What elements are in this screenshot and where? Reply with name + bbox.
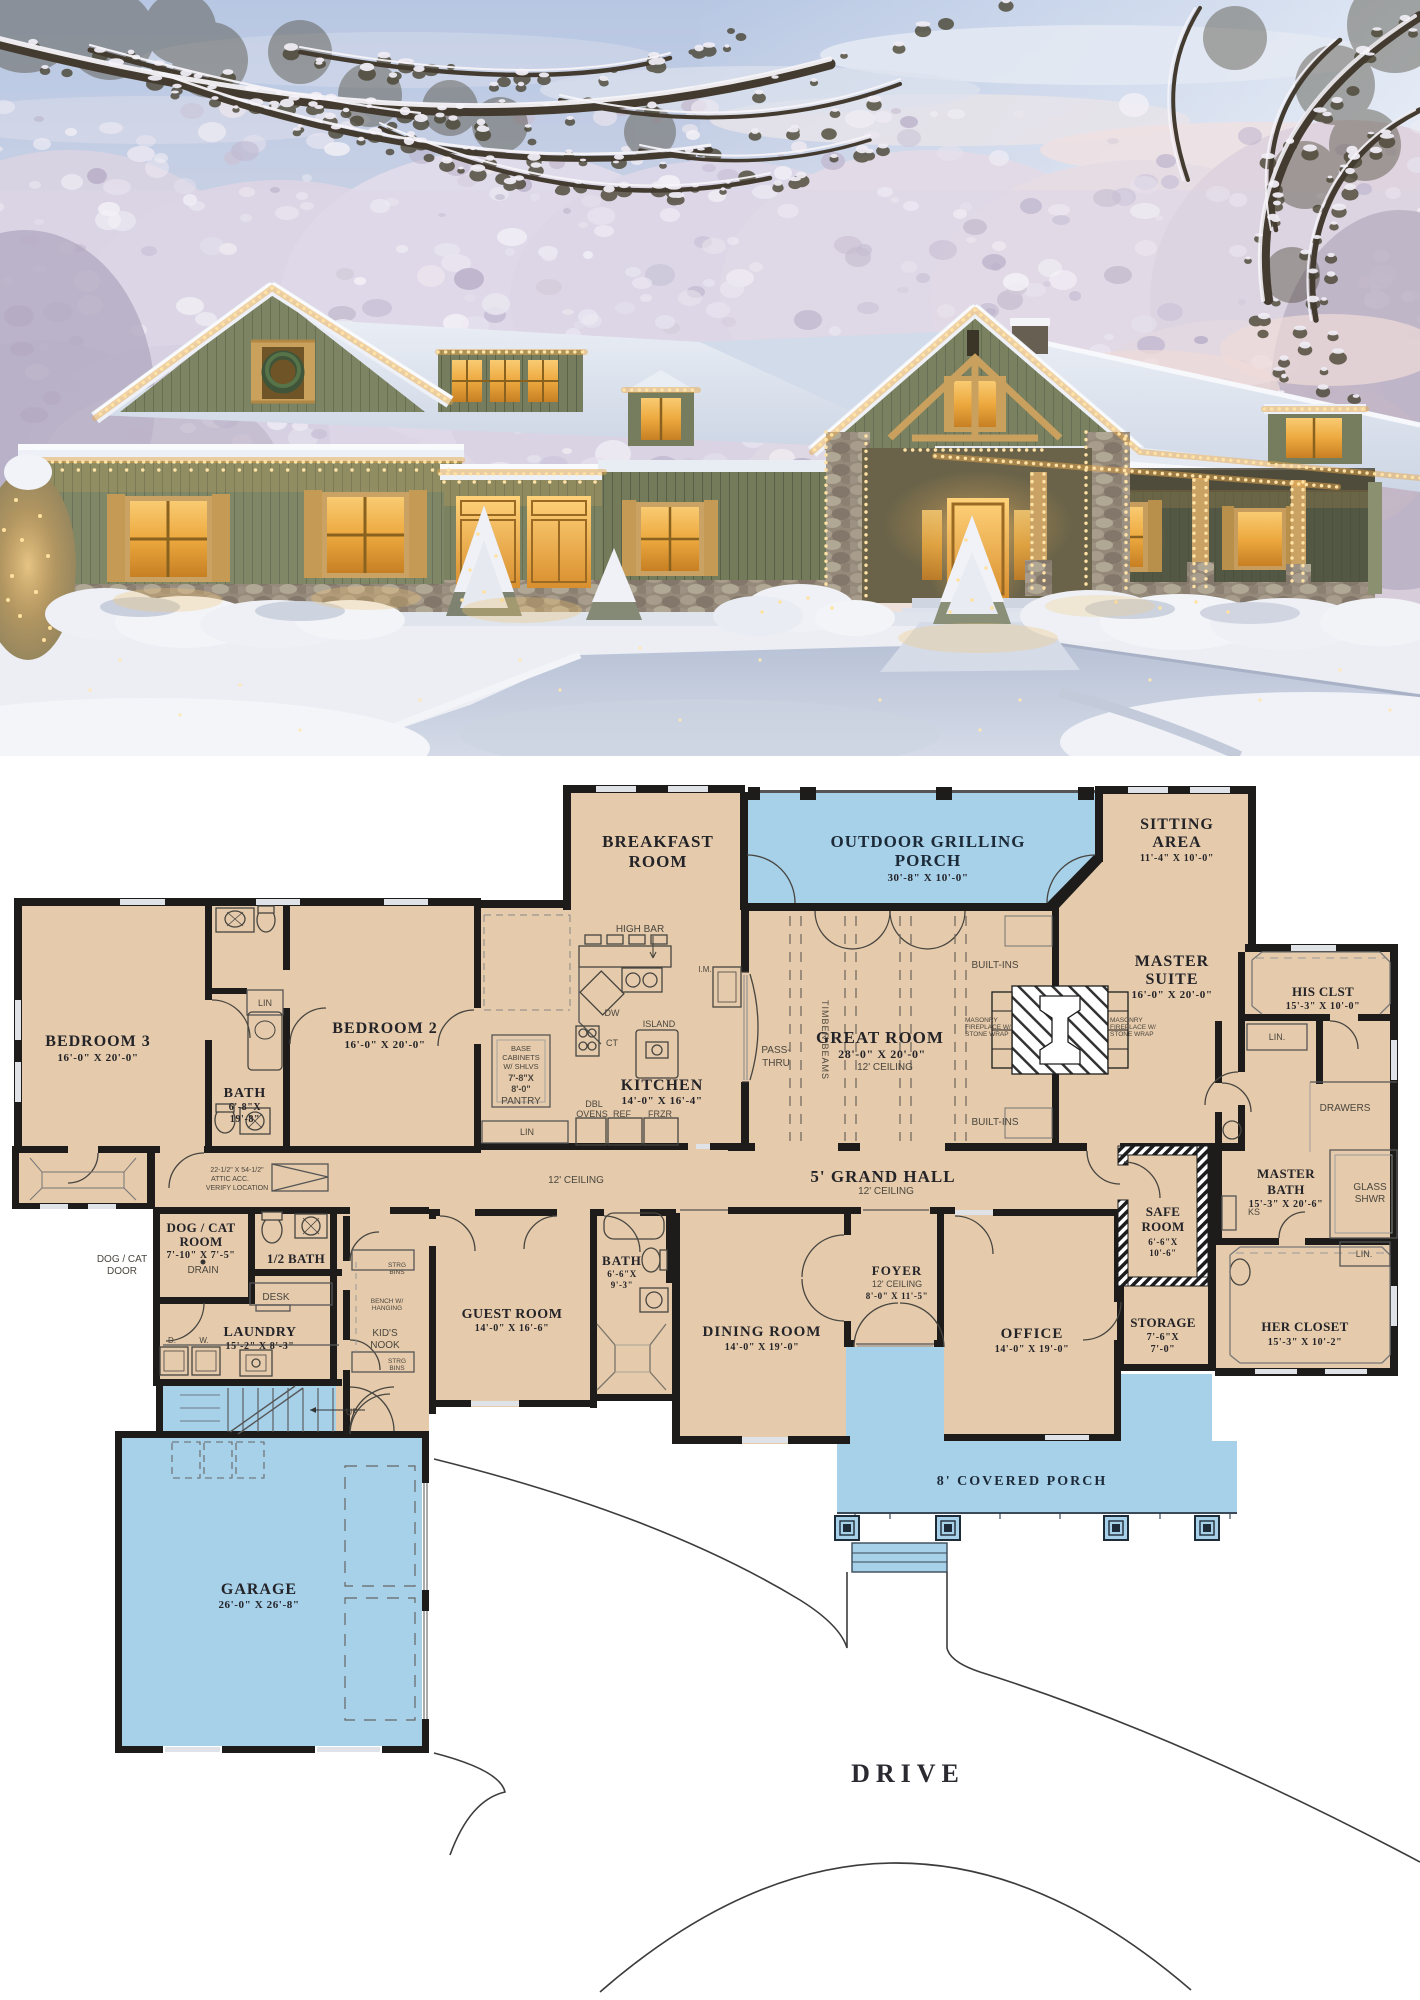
svg-text:15'-3" X 10'-2": 15'-3" X 10'-2" bbox=[1268, 1337, 1343, 1348]
svg-text:BATH: BATH bbox=[224, 1086, 267, 1101]
svg-text:STORAGE: STORAGE bbox=[1130, 1315, 1195, 1330]
svg-text:KID'S: KID'S bbox=[372, 1328, 398, 1339]
svg-text:D.: D. bbox=[168, 1336, 176, 1345]
svg-text:ATTIC ACC.: ATTIC ACC. bbox=[211, 1176, 249, 1183]
svg-text:BEDROOM 3: BEDROOM 3 bbox=[45, 1033, 150, 1050]
svg-text:BUILT-INS: BUILT-INS bbox=[971, 1117, 1018, 1128]
svg-text:12' CEILING: 12' CEILING bbox=[858, 1186, 914, 1197]
svg-text:ISLAND: ISLAND bbox=[643, 1019, 676, 1029]
svg-text:MASONRY: MASONRY bbox=[1110, 1017, 1143, 1024]
svg-text:7'-8"X: 7'-8"X bbox=[508, 1073, 533, 1083]
svg-text:LIN: LIN bbox=[258, 998, 272, 1008]
svg-text:8' COVERED PORCH: 8' COVERED PORCH bbox=[937, 1474, 1107, 1489]
svg-text:LIN.: LIN. bbox=[1269, 1032, 1286, 1042]
svg-text:ROOM: ROOM bbox=[1141, 1219, 1184, 1234]
svg-text:ROOM: ROOM bbox=[629, 852, 688, 871]
svg-text:7'-6"X: 7'-6"X bbox=[1147, 1332, 1180, 1343]
svg-text:REF: REF bbox=[613, 1109, 632, 1119]
svg-text:LIN.: LIN. bbox=[1356, 1249, 1373, 1259]
svg-text:11'-4" X 10'-0": 11'-4" X 10'-0" bbox=[1140, 853, 1214, 864]
svg-text:SHWR: SHWR bbox=[1355, 1194, 1386, 1205]
svg-text:BATH: BATH bbox=[1267, 1182, 1304, 1197]
svg-text:ROOM: ROOM bbox=[179, 1234, 222, 1249]
svg-text:HIS CLST: HIS CLST bbox=[1292, 984, 1354, 999]
svg-text:19'-8": 19'-8" bbox=[230, 1114, 260, 1125]
svg-text:PORCH: PORCH bbox=[895, 851, 961, 870]
svg-text:W.: W. bbox=[199, 1336, 208, 1345]
svg-text:GARAGE: GARAGE bbox=[221, 1581, 297, 1598]
svg-text:MASONRY: MASONRY bbox=[965, 1017, 998, 1024]
svg-text:8'-0": 8'-0" bbox=[511, 1084, 530, 1094]
svg-text:DOG / CAT: DOG / CAT bbox=[97, 1254, 147, 1265]
svg-text:DOOR: DOOR bbox=[107, 1266, 137, 1277]
svg-text:DINING ROOM: DINING ROOM bbox=[703, 1324, 822, 1340]
svg-text:12' CEILING: 12' CEILING bbox=[872, 1279, 922, 1289]
svg-text:12' CEILING: 12' CEILING bbox=[857, 1062, 913, 1073]
svg-text:GLASS: GLASS bbox=[1353, 1182, 1387, 1193]
svg-text:TIMBER BEAMS: TIMBER BEAMS bbox=[820, 1000, 830, 1080]
svg-text:FIREPLACE W/: FIREPLACE W/ bbox=[965, 1024, 1011, 1031]
svg-text:SAFE: SAFE bbox=[1146, 1204, 1180, 1219]
svg-text:HIGH BAR: HIGH BAR bbox=[616, 924, 664, 935]
svg-text:22-1/2" X 54-1/2": 22-1/2" X 54-1/2" bbox=[210, 1167, 264, 1174]
svg-text:KITCHEN: KITCHEN bbox=[621, 1077, 704, 1094]
svg-text:DRIVE: DRIVE bbox=[851, 1759, 965, 1788]
svg-text:HER CLOSET: HER CLOSET bbox=[1261, 1319, 1348, 1334]
svg-text:DBL: DBL bbox=[585, 1099, 603, 1109]
svg-text:GREAT ROOM: GREAT ROOM bbox=[816, 1028, 944, 1047]
svg-text:I.M.: I.M. bbox=[698, 965, 711, 974]
svg-text:BEDROOM 2: BEDROOM 2 bbox=[332, 1020, 437, 1037]
svg-text:14'-0" X 19'-0": 14'-0" X 19'-0" bbox=[725, 1342, 800, 1353]
svg-text:KS: KS bbox=[1248, 1207, 1260, 1217]
svg-text:STONE WRAP: STONE WRAP bbox=[965, 1031, 1009, 1038]
svg-text:MASTER: MASTER bbox=[1257, 1166, 1315, 1181]
svg-text:16'-0" X 20'-0": 16'-0" X 20'-0" bbox=[1131, 989, 1212, 1001]
svg-text:HANGING: HANGING bbox=[372, 1305, 402, 1312]
svg-text:CT: CT bbox=[606, 1038, 618, 1048]
svg-text:DRAIN: DRAIN bbox=[187, 1265, 218, 1276]
svg-text:DW: DW bbox=[605, 1008, 620, 1018]
svg-text:OVENS: OVENS bbox=[576, 1109, 608, 1119]
svg-text:12' CEILING: 12' CEILING bbox=[548, 1175, 604, 1186]
svg-text:STRG: STRG bbox=[388, 1358, 406, 1365]
svg-text:30'-8" X 10'-0": 30'-8" X 10'-0" bbox=[887, 872, 968, 884]
svg-text:LAUNDRY: LAUNDRY bbox=[223, 1325, 296, 1340]
svg-text:MASTER: MASTER bbox=[1135, 953, 1209, 970]
svg-text:26'-0" X 26'-8": 26'-0" X 26'-8" bbox=[218, 1599, 299, 1611]
svg-text:FIREPLACE W/: FIREPLACE W/ bbox=[1110, 1024, 1156, 1031]
svg-text:14'-0" X 16'-4": 14'-0" X 16'-4" bbox=[621, 1095, 702, 1107]
svg-text:FOYER: FOYER bbox=[872, 1263, 923, 1278]
svg-text:BUILT-INS: BUILT-INS bbox=[971, 960, 1018, 971]
svg-text:STONE WRAP: STONE WRAP bbox=[1110, 1031, 1154, 1038]
svg-text:6'-8"X: 6'-8"X bbox=[229, 1102, 262, 1113]
svg-text:10'-6": 10'-6" bbox=[1149, 1248, 1177, 1258]
svg-text:5' GRAND HALL: 5' GRAND HALL bbox=[810, 1167, 955, 1186]
svg-text:LIN: LIN bbox=[520, 1127, 534, 1137]
svg-text:14'-0" X 19'-0": 14'-0" X 19'-0" bbox=[995, 1344, 1070, 1355]
svg-text:7'-0": 7'-0" bbox=[1151, 1344, 1176, 1355]
svg-text:DOG / CAT: DOG / CAT bbox=[167, 1220, 236, 1235]
svg-text:VERIFY LOCATION: VERIFY LOCATION bbox=[206, 1185, 268, 1192]
svg-text:UP: UP bbox=[346, 1407, 359, 1417]
svg-text:CABINETS: CABINETS bbox=[502, 1053, 540, 1062]
svg-text:BREAKFAST: BREAKFAST bbox=[602, 832, 714, 851]
svg-text:BENCH W/: BENCH W/ bbox=[371, 1298, 404, 1305]
svg-text:THRU: THRU bbox=[762, 1058, 790, 1069]
svg-text:STRG: STRG bbox=[388, 1262, 406, 1269]
svg-text:DRAWERS: DRAWERS bbox=[1320, 1103, 1371, 1114]
svg-text:DESK: DESK bbox=[262, 1292, 290, 1303]
svg-text:BATH: BATH bbox=[602, 1253, 642, 1268]
svg-text:6'-6"X: 6'-6"X bbox=[1148, 1237, 1178, 1247]
svg-text:OUTDOOR GRILLING: OUTDOOR GRILLING bbox=[831, 832, 1026, 851]
svg-text:BINS: BINS bbox=[389, 1269, 405, 1276]
svg-text:BASE: BASE bbox=[511, 1044, 531, 1053]
svg-text:6'-6"X: 6'-6"X bbox=[607, 1269, 637, 1279]
svg-text:BINS: BINS bbox=[389, 1365, 405, 1372]
svg-text:AREA: AREA bbox=[1152, 834, 1201, 851]
svg-text:OFFICE: OFFICE bbox=[1001, 1326, 1064, 1342]
svg-text:16'-0" X 20'-0": 16'-0" X 20'-0" bbox=[57, 1052, 138, 1064]
svg-text:SITTING: SITTING bbox=[1140, 816, 1214, 833]
svg-text:FRZR: FRZR bbox=[648, 1109, 672, 1119]
svg-text:1/2 BATH: 1/2 BATH bbox=[267, 1251, 325, 1266]
svg-text:16'-0" X 20'-0": 16'-0" X 20'-0" bbox=[344, 1039, 425, 1051]
svg-text:9'-3": 9'-3" bbox=[611, 1280, 634, 1290]
svg-text:8'-0" X 11'-5": 8'-0" X 11'-5" bbox=[866, 1291, 928, 1301]
svg-text:28'-0" X 20'-0": 28'-0" X 20'-0" bbox=[838, 1047, 926, 1061]
svg-text:7'-10" X 7'-5": 7'-10" X 7'-5" bbox=[167, 1250, 236, 1261]
svg-text:14'-0" X 16'-6": 14'-0" X 16'-6" bbox=[475, 1323, 550, 1334]
svg-text:15'-2" X 8'-3": 15'-2" X 8'-3" bbox=[226, 1341, 295, 1352]
svg-text:15'-3" X 10'-0": 15'-3" X 10'-0" bbox=[1286, 1001, 1361, 1012]
svg-text:PASS-: PASS- bbox=[761, 1045, 790, 1056]
svg-text:NOOK: NOOK bbox=[370, 1340, 400, 1351]
svg-text:W/ SHLVS: W/ SHLVS bbox=[503, 1062, 538, 1071]
svg-text:GUEST ROOM: GUEST ROOM bbox=[462, 1307, 563, 1322]
svg-text:PANTRY: PANTRY bbox=[501, 1096, 541, 1107]
svg-text:SUITE: SUITE bbox=[1145, 971, 1198, 988]
